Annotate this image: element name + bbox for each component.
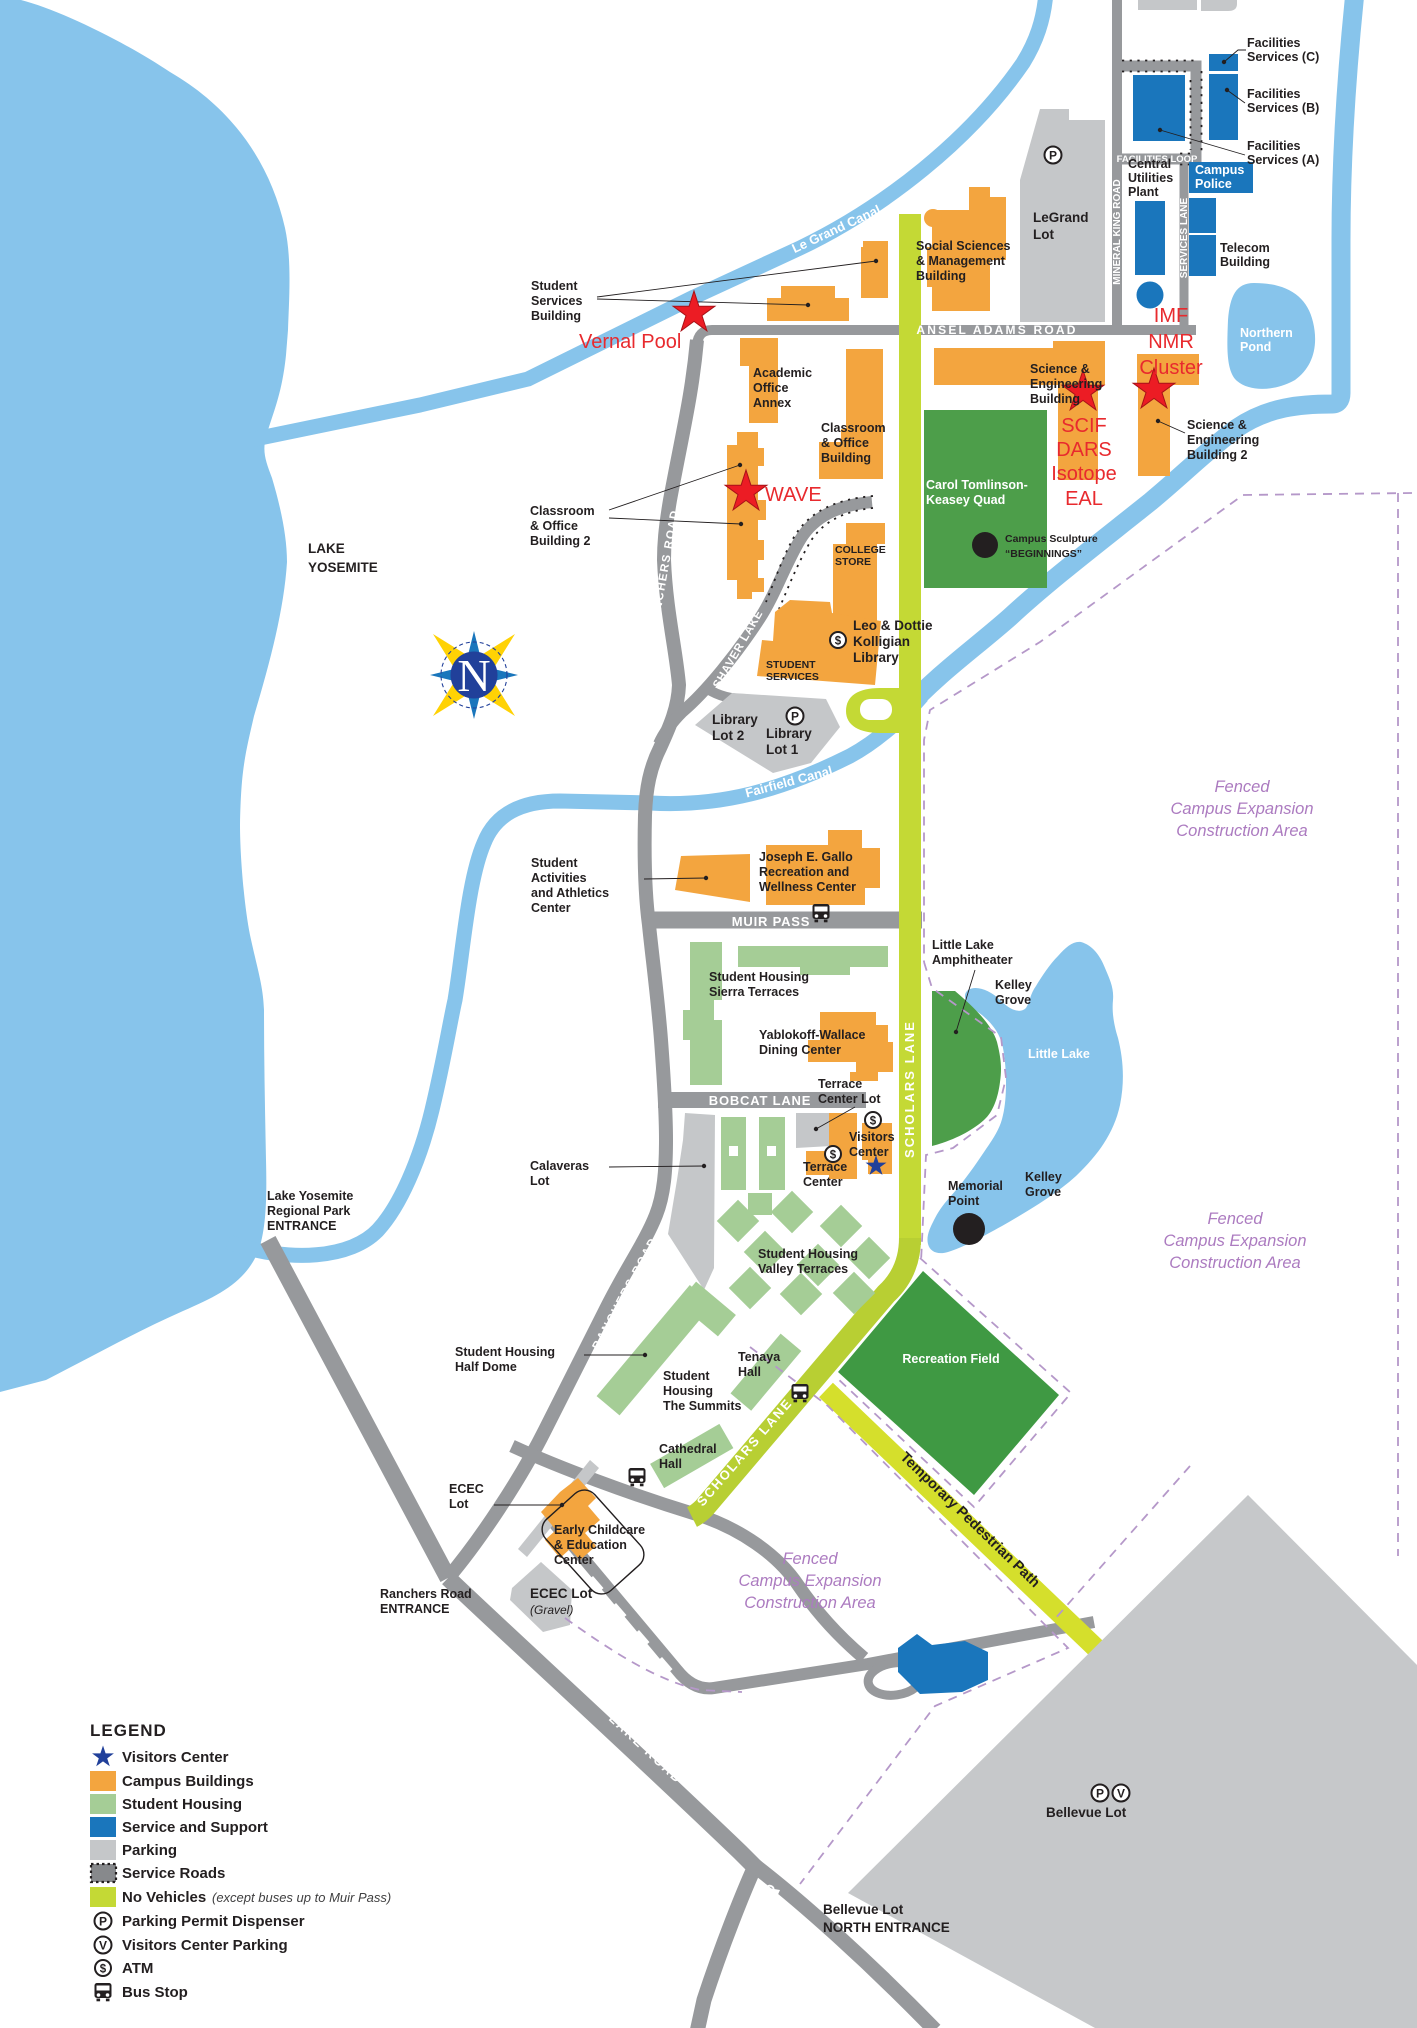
svg-text:VisitorsCenter: VisitorsCenter: [849, 1130, 895, 1159]
svg-text:TelecomBuilding: TelecomBuilding: [1220, 241, 1270, 269]
svg-text:ECEC Lot: ECEC Lot: [530, 1586, 593, 1601]
svg-text:StudentServicesBuilding: StudentServicesBuilding: [531, 279, 582, 323]
svg-text:ATM: ATM: [122, 1960, 153, 1977]
svg-text:Little Lake: Little Lake: [1028, 1047, 1090, 1061]
svg-text:Student HousingSierra Terraces: Student HousingSierra Terraces: [709, 970, 809, 999]
svg-text:KelleyGrove: KelleyGrove: [995, 978, 1032, 1007]
svg-text:MUIR PASS: MUIR PASS: [732, 914, 810, 929]
svg-text:KelleyGrove: KelleyGrove: [1025, 1170, 1062, 1199]
svg-text:Student HousingValley Terraces: Student HousingValley Terraces: [758, 1247, 858, 1276]
svg-text:Visitors Center Parking: Visitors Center Parking: [122, 1937, 288, 1954]
svg-text:Visitors Center: Visitors Center: [122, 1749, 229, 1766]
svg-text:Parking: Parking: [122, 1842, 177, 1859]
svg-text:Service and Support: Service and Support: [122, 1819, 268, 1836]
svg-text:LEGEND: LEGEND: [90, 1721, 167, 1740]
svg-text:SERVICES LANE: SERVICES LANE: [1179, 197, 1190, 278]
svg-text:N: N: [457, 650, 490, 701]
svg-text:WAVE: WAVE: [765, 484, 822, 506]
svg-text:MINERAL KING ROAD: MINERAL KING ROAD: [1112, 179, 1123, 284]
svg-text:Service Roads: Service Roads: [122, 1865, 225, 1882]
svg-text:ANSEL ADAMS ROAD: ANSEL ADAMS ROAD: [916, 323, 1077, 337]
svg-text:Student Housing: Student Housing: [122, 1796, 242, 1813]
svg-text:BOBCAT LANE: BOBCAT LANE: [709, 1093, 811, 1108]
svg-text:(except buses up to Muir Pass): (except buses up to Muir Pass): [212, 1890, 391, 1905]
svg-text:Bus Stop: Bus Stop: [122, 1984, 188, 2001]
svg-text:Parking Permit Dispenser: Parking Permit Dispenser: [122, 1913, 305, 1930]
svg-text:Vernal Pool: Vernal Pool: [579, 331, 681, 353]
svg-text:STUDENTSERVICES: STUDENTSERVICES: [766, 659, 819, 683]
svg-text:No Vehicles: No Vehicles: [122, 1889, 206, 1906]
svg-text:Campus Buildings: Campus Buildings: [122, 1773, 254, 1790]
svg-text:(Gravel): (Gravel): [530, 1603, 573, 1617]
svg-text:Joseph E. GalloRecreation andW: Joseph E. GalloRecreation andWellness Ce…: [759, 850, 856, 894]
svg-text:SCHOLARS LANE: SCHOLARS LANE: [902, 1020, 917, 1158]
svg-text:Bellevue Lot: Bellevue Lot: [1046, 1805, 1127, 1820]
svg-text:Recreation Field: Recreation Field: [902, 1352, 999, 1366]
svg-text:TerraceCenter: TerraceCenter: [803, 1160, 847, 1189]
